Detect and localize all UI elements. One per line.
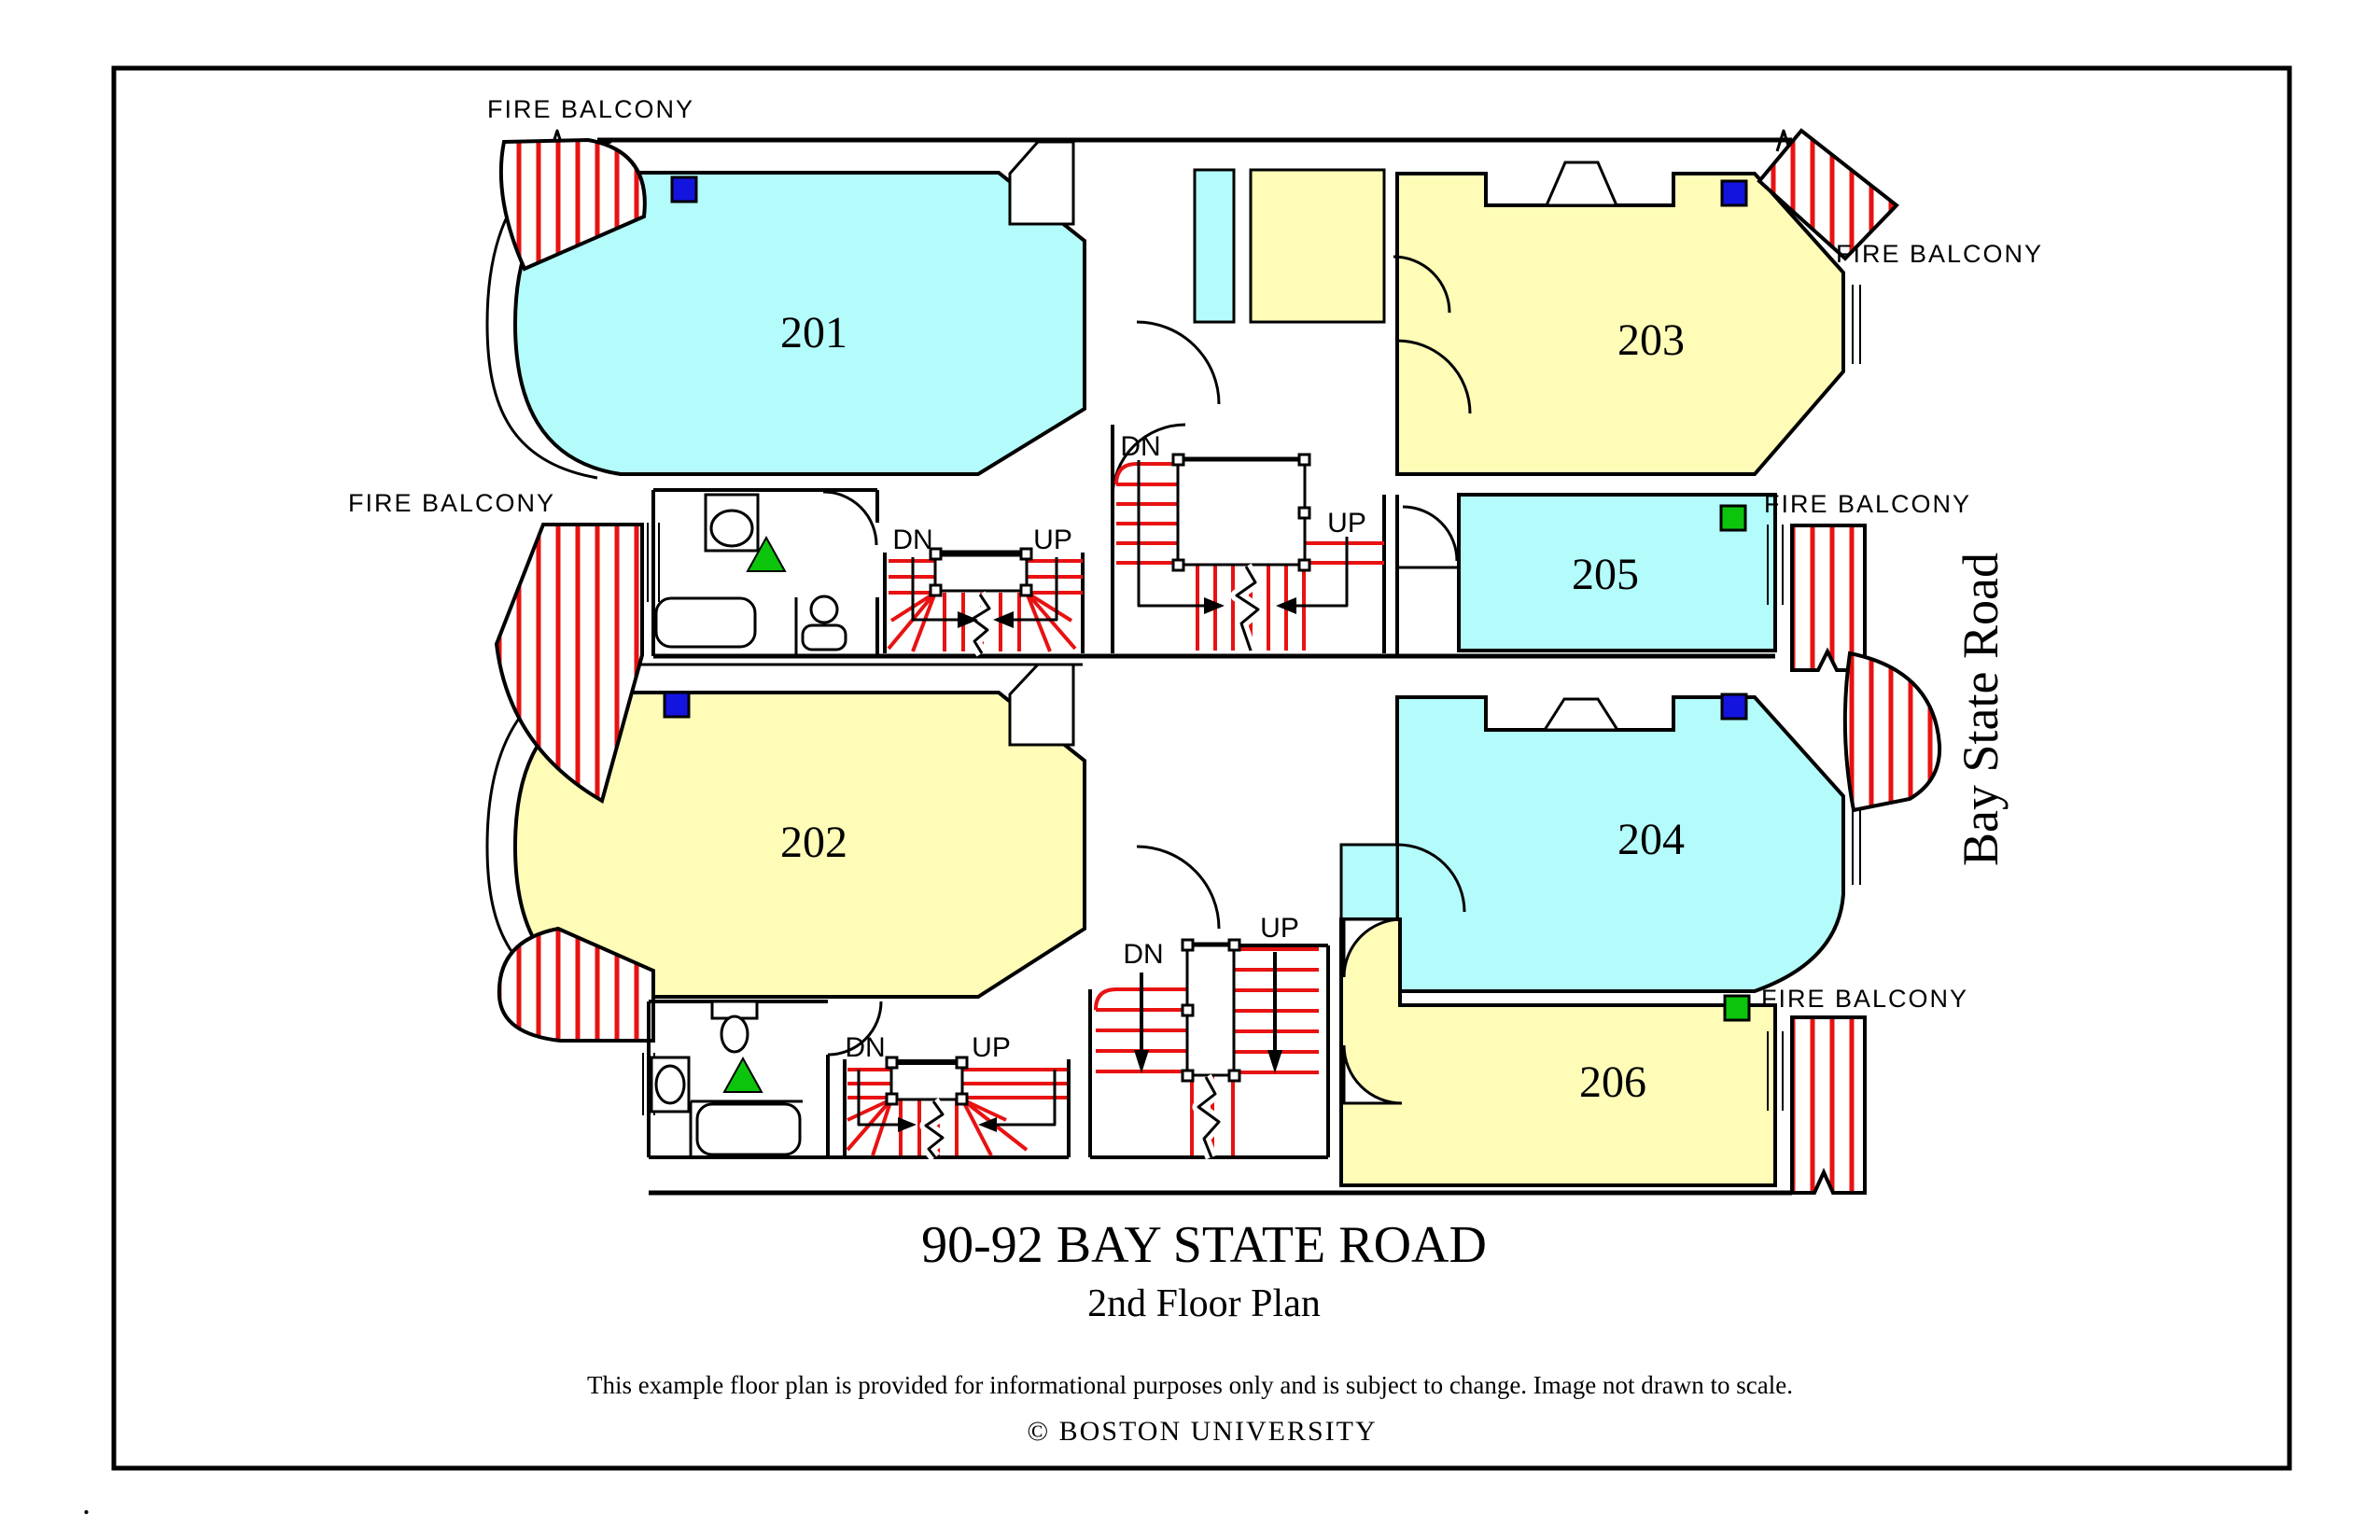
room-206-label: 206 (1579, 1057, 1646, 1107)
closet-yellow (1251, 170, 1384, 322)
plan-disclaimer: This example floor plan is provided for … (587, 1371, 1793, 1399)
room-204-label: 204 (1617, 815, 1685, 864)
floor-plan-page: DN UP DN UP (0, 0, 2380, 1540)
fire-balcony-right-205 (1792, 525, 1865, 670)
fire-balcony-bottom-right (1792, 1017, 1865, 1193)
corner-mark: . (82, 1484, 91, 1521)
blue-square-marker-201 (672, 177, 696, 202)
sink-bowl (656, 1066, 684, 1103)
floor-plan-canvas: DN UP DN UP (0, 0, 2380, 1540)
stair-landing (891, 1062, 962, 1099)
stairwell-opening (1178, 459, 1305, 565)
street-name: Bay State Road (1953, 553, 2009, 866)
green-square-marker-206 (1725, 996, 1749, 1020)
blue-square-marker-203 (1722, 181, 1746, 205)
fire-balcony-label-left: FIRE BALCONY (348, 489, 555, 517)
bathtub (697, 1104, 800, 1155)
stair-up-label: UP (1033, 525, 1072, 555)
plan-copyright: © BOSTON UNIVERSITY (1027, 1416, 1377, 1447)
stair-up-label: UP (1260, 913, 1299, 944)
stair-dn-label: DN (1123, 939, 1163, 970)
toilet (721, 1016, 748, 1052)
bathtub (656, 598, 755, 647)
blue-square-marker-202 (665, 693, 689, 717)
stair-landing (935, 553, 1027, 591)
hall-arm (1341, 845, 1397, 919)
fire-balcony-label-top-right: FIRE BALCONY (1836, 240, 2043, 268)
plan-title: 90-92 BAY STATE ROAD (921, 1216, 1487, 1274)
stair-up-label: UP (1327, 508, 1366, 539)
room-204-area (1341, 697, 1860, 991)
toilet (811, 596, 837, 623)
room-203-label: 203 (1617, 315, 1685, 365)
stair-dn-label: DN (892, 525, 932, 555)
fire-balcony-label-top-left: FIRE BALCONY (487, 95, 694, 123)
room-205-label: 205 (1572, 550, 1639, 599)
toilet-tank (803, 625, 846, 650)
fire-balcony-label-bottom-right: FIRE BALCONY (1761, 985, 1968, 1013)
closet-cyan (1195, 170, 1234, 322)
stair-up-label: UP (972, 1032, 1011, 1063)
green-square-marker-205 (1721, 506, 1745, 530)
blue-square-marker-204 (1722, 694, 1746, 719)
plan-subtitle: 2nd Floor Plan (1087, 1282, 1321, 1325)
sink-bowl (711, 511, 752, 546)
room-201-label: 201 (780, 308, 847, 357)
stair-dn-label: DN (845, 1032, 885, 1063)
room-202-label: 202 (780, 818, 847, 867)
stair-dn-label: DN (1120, 431, 1160, 462)
fire-balcony-label-right: FIRE BALCONY (1764, 490, 1971, 518)
